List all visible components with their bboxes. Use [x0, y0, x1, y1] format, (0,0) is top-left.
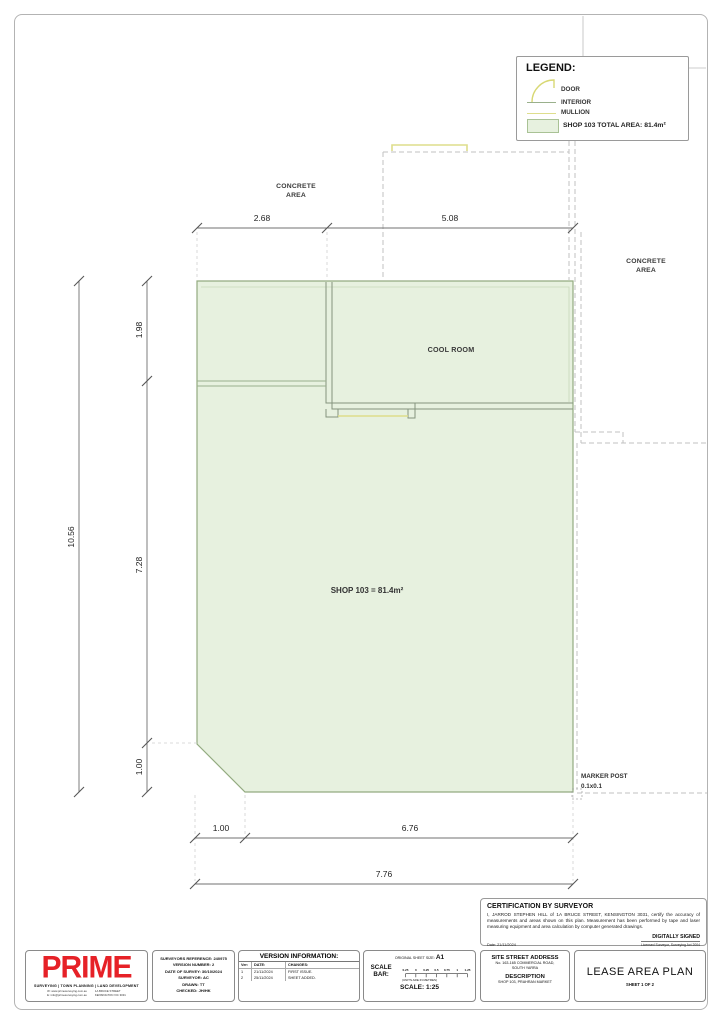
marker-post-label-2: 0.1x0.1 — [581, 783, 603, 790]
tick-label: 0.5 — [435, 968, 440, 972]
mullion-line-icon — [527, 113, 556, 114]
scale-value: SCALE: 1:25 — [364, 984, 475, 991]
cool-room-label: COOL ROOM — [428, 345, 475, 354]
concrete-area-right-label-2: AREA — [636, 267, 656, 274]
dim-top-a: 2.68 — [254, 213, 271, 223]
concrete-area-top-label-2: AREA — [286, 192, 306, 199]
interior-line-icon — [527, 102, 556, 103]
tick-label: 0.25 — [423, 968, 429, 972]
dim-left-total: 10.56 — [66, 526, 76, 548]
certification-footer: Date: 21/11/2024 DIGITALLY SIGNED Licens… — [487, 934, 700, 947]
licensed-surveyor-label: Licensed Surveyor, Surveying Act 2004 — [641, 941, 700, 947]
dim-top-b: 5.08 — [442, 213, 459, 223]
logo-contact: W: www.primesurveying.com.au E: info@pri… — [26, 990, 147, 998]
drawing-title: LEASE AREA PLAN — [587, 966, 694, 978]
col-date: DATE: — [252, 962, 286, 969]
surveyors-reference-block: SURVEYORS REFERENCE: 240975 VERSION NUMB… — [152, 950, 235, 1002]
dim-bottom-a: 1.00 — [213, 823, 230, 833]
legend-mullion-label: MULLION — [561, 109, 590, 116]
legend-interior-label: INTERIOR — [561, 99, 591, 106]
dim-left-a: 1.98 — [134, 321, 144, 338]
legend-area-label: SHOP 103 TOTAL AREA: 81.4m² — [563, 122, 666, 129]
col-changes: CHANGES: — [286, 962, 359, 969]
contact-email-line: E: info@primesurveying.com.au — [47, 994, 87, 998]
digitally-signed-label: DIGITALLY SIGNED — [641, 934, 700, 940]
marker-post-label-1: MARKER POST — [581, 773, 628, 780]
scale-bar-tick-labels: 0.25 0 0.25 0.5 0.75 1 1.25 — [403, 968, 471, 972]
tick-label: 1.25 — [465, 968, 471, 972]
scale-block: ORIGINAL SHEET SIZE: A1 SCALE BAR: 0.25 — [363, 950, 476, 1002]
tick-label: 1 — [457, 968, 459, 972]
version-info-title: VERSION INFORMATION: — [239, 951, 359, 962]
tick-label: 0 — [415, 968, 417, 972]
col-ver: Ver: — [239, 962, 252, 969]
sheet-number: SHEET 1 OF 2 — [626, 982, 654, 987]
shop-area-label: SHOP 103 = 81.4m² — [331, 586, 404, 595]
version-info-table: Ver: DATE: CHANGES: 1 21/11/2024 FIRST I… — [239, 962, 359, 981]
site-address-block: SITE STREET ADDRESS No. 163-165 COMMERCI… — [480, 950, 570, 1002]
dim-bottom-b: 6.76 — [402, 823, 419, 833]
table-cell: 25/11/2024 — [252, 975, 286, 981]
certification-title: CERTIFICATION BY SURVEYOR — [487, 903, 700, 910]
dim-left-c: 1.00 — [134, 758, 144, 775]
table-cell: 2 — [239, 975, 252, 981]
sheet-size-label: ORIGINAL SHEET SIZE: — [395, 956, 435, 960]
floor-plan-drawing: 2.68 5.08 10.56 1.98 7.28 1.00 1.00 6.76… — [0, 0, 723, 1024]
legend-door-label: DOOR — [561, 86, 580, 93]
address-line-2: SOUTH YARRA — [481, 966, 569, 971]
logo-contact-address: 1A BRUCE STREET KENSINGTON VIC 3031 — [95, 990, 126, 998]
logo-block: PRIME SURVEYING | TOWN PLANNING | LAND D… — [25, 950, 148, 1002]
table-cell: SHEET ADDED. — [286, 975, 359, 981]
legend-box: LEGEND: DOOR INTERIOR MULLION SHOP 103 T… — [516, 56, 689, 141]
scale-bar-ticks — [406, 974, 468, 978]
ref-line-6: CHECKED: JH/HK — [153, 988, 234, 994]
certification-signature: DIGITALLY SIGNED Licensed Surveyor, Surv… — [641, 934, 700, 947]
door-icon — [529, 77, 557, 105]
sheet-size-value: A1 — [436, 954, 444, 961]
mullion-line-top — [392, 145, 467, 151]
legend-title: LEGEND: — [526, 62, 576, 74]
certification-box: CERTIFICATION BY SURVEYOR I, JARROD STEP… — [480, 898, 707, 946]
certification-body: I, JARROD STEPHEN HILL of 1A BRUCE STREE… — [487, 912, 700, 931]
prime-logo: PRIME — [26, 952, 147, 984]
sheet-size-line: ORIGINAL SHEET SIZE: A1 — [364, 954, 475, 961]
plan-sheet: 2.68 5.08 10.56 1.98 7.28 1.00 1.00 6.76… — [0, 0, 723, 1024]
dim-bottom-total: 7.76 — [376, 869, 393, 879]
concrete-area-right-label-1: CONCRETE — [626, 258, 666, 265]
concrete-area-top-label-1: CONCRETE — [276, 183, 316, 190]
version-information-block: VERSION INFORMATION: Ver: DATE: CHANGES:… — [238, 950, 360, 1002]
certification-date: Date: 21/11/2024 — [487, 943, 516, 947]
dim-left-b: 7.28 — [134, 556, 144, 573]
shop-area-swatch-icon — [527, 119, 559, 133]
description-value: SHOP 103, PRAHRAN MARKET — [481, 980, 569, 985]
logo-contact-web: W: www.primesurveying.com.au E: info@pri… — [47, 990, 87, 998]
contact-addr-line2: KENSINGTON VIC 3031 — [95, 994, 126, 998]
shop-area-polygon — [197, 281, 573, 792]
drawing-title-block: LEASE AREA PLAN SHEET 1 OF 2 — [574, 950, 706, 1002]
tick-label: 0.75 — [444, 968, 450, 972]
scale-bar-label: SCALE BAR: — [364, 964, 398, 978]
tick-label: 0.25 — [403, 968, 409, 972]
